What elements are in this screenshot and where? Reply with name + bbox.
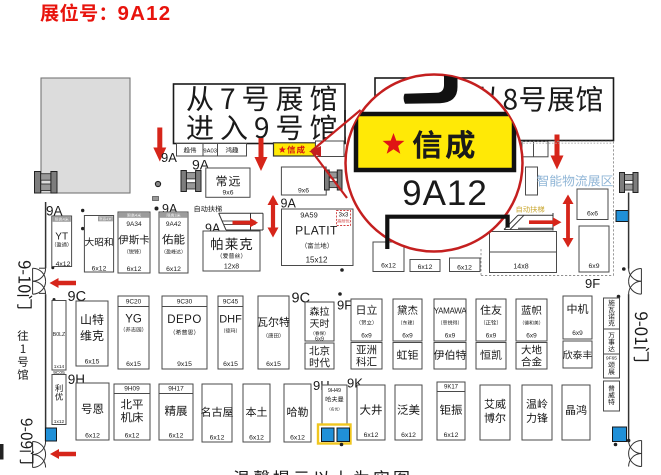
svg-text:9K17: 9K17 xyxy=(444,385,459,391)
svg-text:9A59: 9A59 xyxy=(300,211,318,220)
svg-text:6x12: 6x12 xyxy=(166,266,181,273)
svg-text:9A12: 9A12 xyxy=(402,174,488,213)
svg-text:14x8: 14x8 xyxy=(513,264,528,271)
svg-text:DHF: DHF xyxy=(219,314,242,326)
svg-text:PLATIT: PLATIT xyxy=(295,224,338,238)
svg-text:YG: YG xyxy=(125,314,142,326)
svg-text:6x9: 6x9 xyxy=(486,333,497,340)
svg-text:9H09: 9H09 xyxy=(124,386,140,393)
svg-text:6x9: 6x9 xyxy=(572,330,583,337)
svg-text:1x14: 1x14 xyxy=(54,364,65,370)
svg-text:9F: 9F xyxy=(585,276,600,291)
svg-text:9A12: 9A12 xyxy=(118,2,172,25)
svg-text:6x15: 6x15 xyxy=(126,361,141,368)
svg-text:6x12: 6x12 xyxy=(381,263,396,270)
svg-text:3x3: 3x3 xyxy=(339,213,349,219)
svg-text:9H49: 9H49 xyxy=(328,388,341,394)
svg-text:9F: 9F xyxy=(337,298,352,313)
svg-text:9F65: 9F65 xyxy=(606,356,617,362)
svg-text:6x15: 6x15 xyxy=(223,361,238,368)
svg-text:6x9: 6x9 xyxy=(315,337,324,343)
svg-text:12x8: 12x8 xyxy=(224,264,239,271)
svg-text:6x9: 6x9 xyxy=(402,333,413,340)
svg-text:9C45: 9C45 xyxy=(223,299,239,306)
svg-text:9x6: 9x6 xyxy=(223,190,234,197)
svg-text:6x12: 6x12 xyxy=(127,266,142,273)
svg-text:6x12: 6x12 xyxy=(125,433,140,440)
svg-text:9C20: 9C20 xyxy=(126,299,142,306)
svg-text:4x12: 4x12 xyxy=(56,261,71,268)
svg-text:6x9: 6x9 xyxy=(589,263,600,270)
svg-text:9A: 9A xyxy=(281,197,297,211)
svg-text:6x12: 6x12 xyxy=(364,432,379,439)
svg-text:9A03: 9A03 xyxy=(203,148,217,154)
svg-text:YT: YT xyxy=(55,232,68,243)
svg-text:9A: 9A xyxy=(161,150,177,165)
svg-text:6x6: 6x6 xyxy=(587,211,598,218)
svg-text:15x12: 15x12 xyxy=(306,256,328,265)
svg-text:6x12: 6x12 xyxy=(444,432,459,439)
svg-text:9x15: 9x15 xyxy=(177,361,192,368)
svg-text:6x12: 6x12 xyxy=(85,433,100,440)
svg-text:9A42: 9A42 xyxy=(166,221,182,228)
svg-text:9A34: 9A34 xyxy=(126,221,142,228)
svg-text:6x12: 6x12 xyxy=(457,264,472,271)
svg-text:6x12: 6x12 xyxy=(210,435,225,442)
svg-text:6x9: 6x9 xyxy=(526,333,537,340)
svg-text:6x12: 6x12 xyxy=(418,264,433,271)
svg-text:1x12: 1x12 xyxy=(54,419,65,425)
svg-text:9x6: 9x6 xyxy=(298,188,309,195)
svg-text:6x12: 6x12 xyxy=(401,432,416,439)
svg-text:6x12: 6x12 xyxy=(249,435,264,442)
svg-text:YAMAWA: YAMAWA xyxy=(434,307,468,316)
svg-text:6x9: 6x9 xyxy=(361,333,372,340)
svg-text:6x12: 6x12 xyxy=(92,266,107,273)
svg-text:9H17: 9H17 xyxy=(168,386,184,393)
svg-text:6x12: 6x12 xyxy=(169,433,184,440)
svg-text:9C30: 9C30 xyxy=(177,299,193,306)
svg-text:6x15: 6x15 xyxy=(266,361,281,368)
svg-text:6x12: 6x12 xyxy=(290,435,305,442)
svg-text:6x15: 6x15 xyxy=(85,359,100,366)
svg-text:DEPO: DEPO xyxy=(167,314,202,326)
svg-text:6x9: 6x9 xyxy=(445,333,456,340)
svg-text:B0LZ: B0LZ xyxy=(53,332,65,338)
